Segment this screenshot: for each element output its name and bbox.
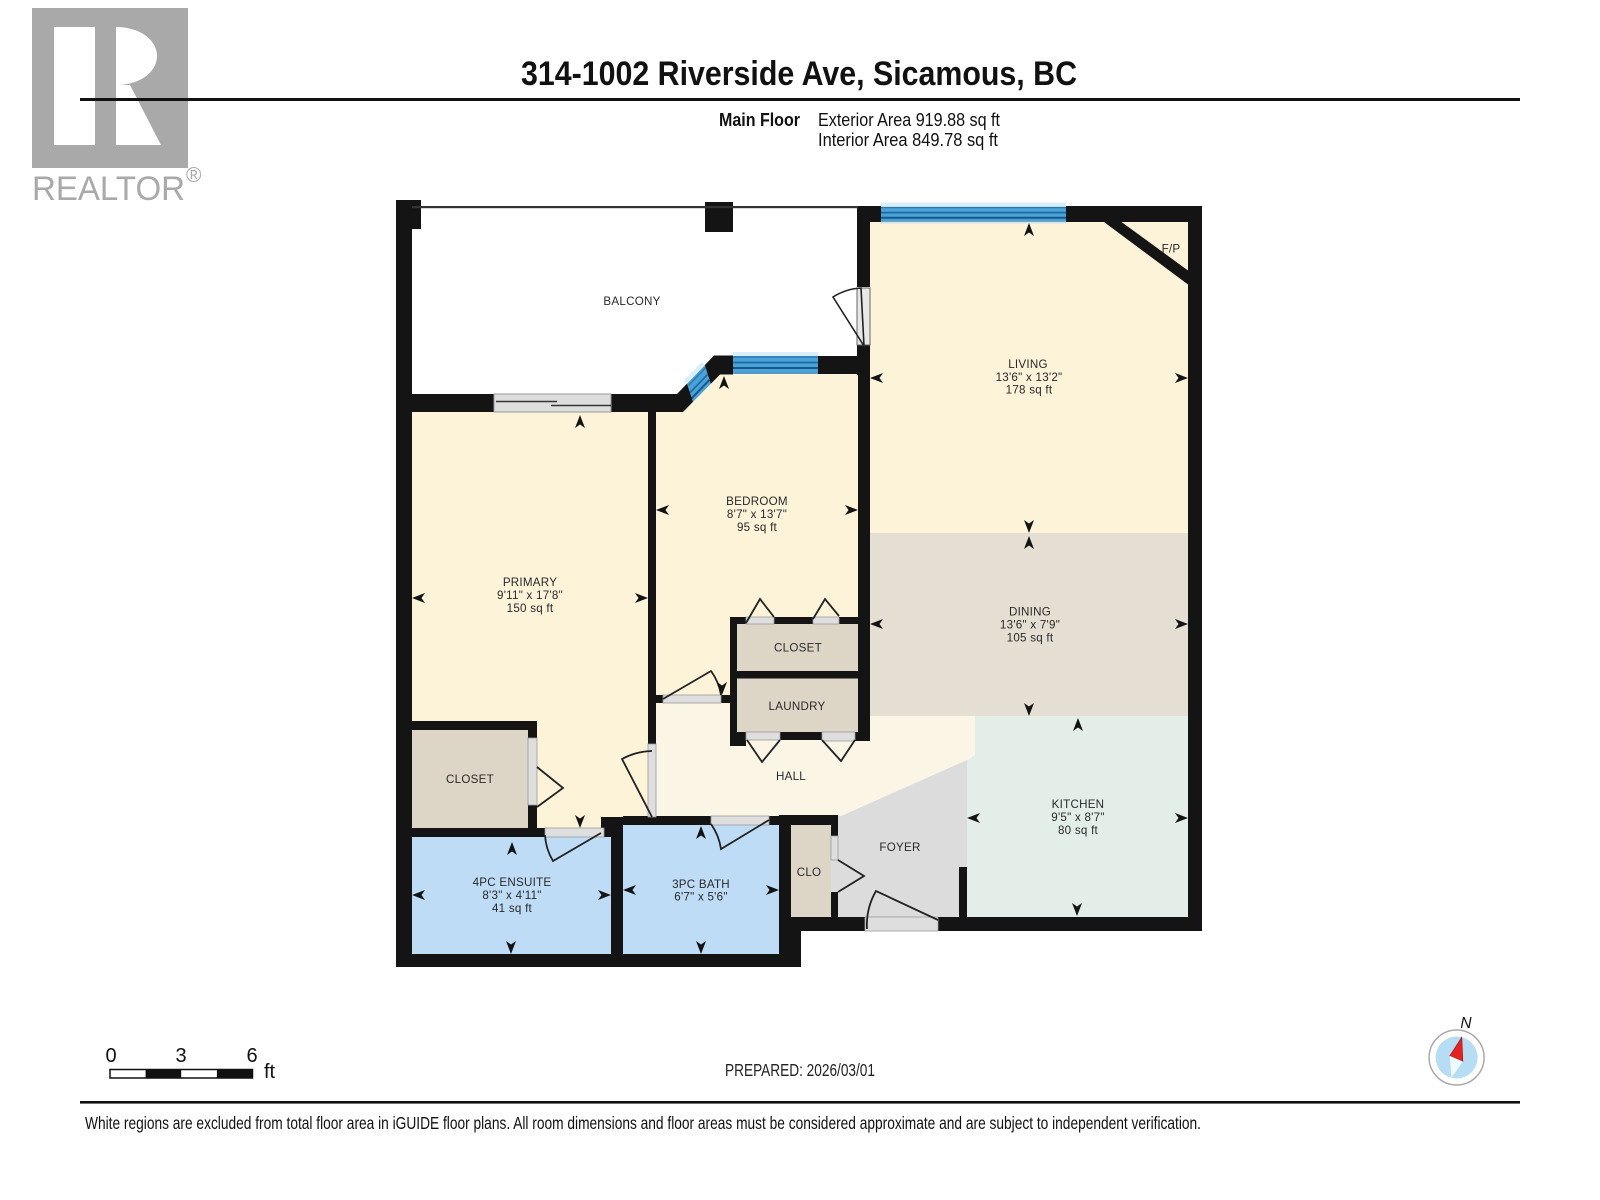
svg-text:80 sq ft: 80 sq ft (1058, 824, 1099, 837)
svg-text:®: ® (186, 164, 202, 187)
svg-text:F/P: F/P (1162, 243, 1181, 256)
svg-text:LIVING: LIVING (1008, 358, 1048, 371)
svg-text:3: 3 (175, 1045, 186, 1067)
svg-text:N: N (1460, 1015, 1472, 1032)
svg-text:CLO: CLO (797, 866, 822, 879)
svg-text:6'7" x 5'6": 6'7" x 5'6" (674, 891, 727, 904)
svg-text:Interior Area 849.78 sq ft: Interior Area 849.78 sq ft (818, 130, 998, 150)
svg-text:REALTOR: REALTOR (32, 170, 185, 208)
svg-text:ft: ft (264, 1061, 276, 1083)
svg-text:9'5" x 8'7": 9'5" x 8'7" (1051, 811, 1104, 824)
svg-text:178 sq ft: 178 sq ft (1006, 384, 1053, 397)
svg-text:CLOSET: CLOSET (774, 642, 822, 655)
svg-text:Main Floor: Main Floor (719, 110, 800, 130)
svg-text:BEDROOM: BEDROOM (726, 495, 788, 508)
svg-text:13'6" x 13'2": 13'6" x 13'2" (996, 371, 1063, 384)
svg-text:White regions are excluded fro: White regions are excluded from total fl… (85, 1113, 1201, 1133)
svg-text:0: 0 (105, 1045, 116, 1067)
svg-text:KITCHEN: KITCHEN (1052, 798, 1105, 811)
svg-text:PRIMARY: PRIMARY (503, 576, 557, 589)
svg-text:HALL: HALL (776, 770, 806, 783)
svg-text:150 sq ft: 150 sq ft (507, 602, 554, 615)
svg-text:9'11" x 17'8": 9'11" x 17'8" (497, 589, 563, 602)
svg-text:13'6" x 7'9": 13'6" x 7'9" (1000, 619, 1060, 632)
svg-text:8'7" x 13'7": 8'7" x 13'7" (727, 508, 787, 521)
svg-text:FOYER: FOYER (879, 841, 920, 854)
svg-text:Exterior Area 919.88 sq ft: Exterior Area 919.88 sq ft (818, 110, 1000, 130)
svg-text:PREPARED: 2026/03/01: PREPARED: 2026/03/01 (725, 1060, 875, 1080)
svg-text:41 sq ft: 41 sq ft (492, 902, 533, 915)
svg-text:CLOSET: CLOSET (446, 773, 494, 786)
svg-text:BALCONY: BALCONY (603, 295, 660, 308)
svg-text:8'3" x 4'11": 8'3" x 4'11" (482, 889, 541, 902)
svg-text:LAUNDRY: LAUNDRY (769, 700, 826, 713)
svg-text:6: 6 (246, 1045, 257, 1067)
svg-text:95 sq ft: 95 sq ft (737, 521, 778, 534)
svg-text:314-1002 Riverside Ave, Sicamo: 314-1002 Riverside Ave, Sicamous, BC (521, 55, 1077, 93)
svg-text:105 sq ft: 105 sq ft (1007, 632, 1054, 645)
svg-text:DINING: DINING (1009, 606, 1051, 619)
svg-text:4PC ENSUITE: 4PC ENSUITE (473, 876, 552, 889)
svg-text:3PC BATH: 3PC BATH (672, 878, 730, 891)
